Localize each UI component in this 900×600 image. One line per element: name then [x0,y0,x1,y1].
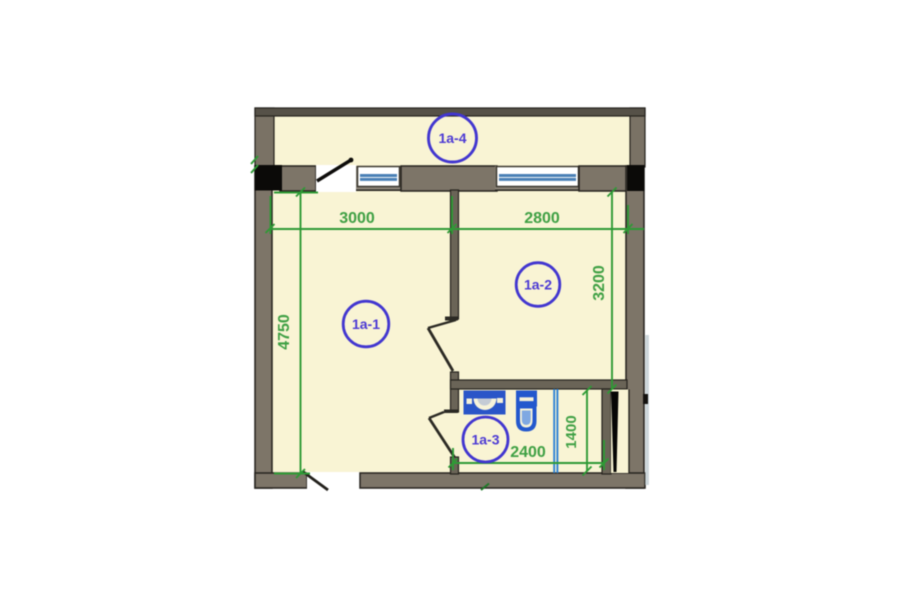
svg-text:2400: 2400 [510,444,546,461]
svg-text:1a-2: 1a-2 [524,277,552,293]
svg-text:1400: 1400 [563,415,580,448]
svg-text:1a-1: 1a-1 [352,316,380,332]
svg-text:1a-3: 1a-3 [471,432,499,448]
svg-text:1a-4: 1a-4 [438,130,466,146]
svg-text:3200: 3200 [591,265,608,301]
svg-text:3000: 3000 [339,210,375,227]
svg-text:4750: 4750 [276,314,293,350]
svg-text:2800: 2800 [524,210,560,227]
